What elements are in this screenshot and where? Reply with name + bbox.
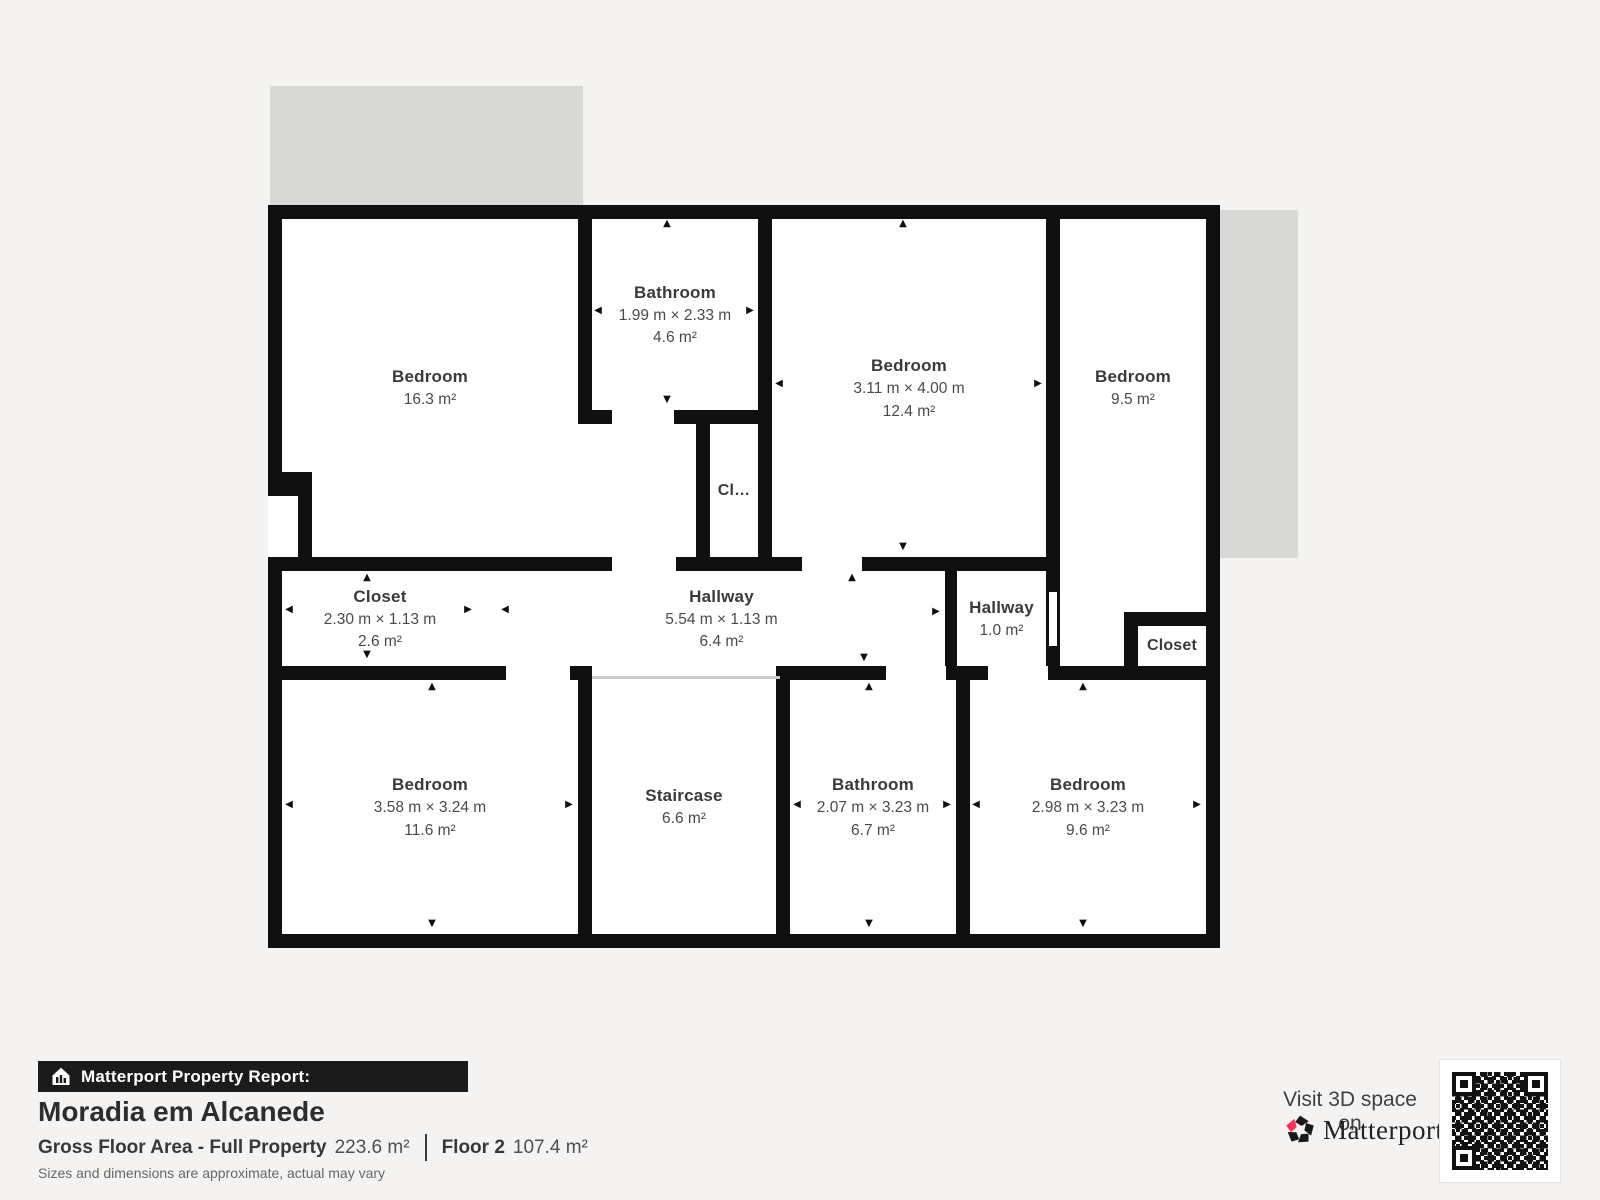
door-bedroommid — [802, 557, 862, 571]
matterport-logo: Matterport’ — [1284, 1114, 1448, 1146]
room-dimensions: 3.58 m × 3.24 m — [374, 798, 486, 817]
arrow-left-icon: ◀ — [793, 800, 801, 810]
floor-label: Floor 2 — [442, 1137, 505, 1159]
door-bathroomb — [886, 666, 946, 680]
room-closet-right: Closet — [1138, 626, 1206, 666]
floor-value: 107.4 m² — [513, 1137, 588, 1159]
arrow-left-icon: ◀ — [972, 800, 980, 810]
report-badge-label: Matterport Property Report: — [81, 1067, 310, 1087]
arrow-left-icon: ◀ — [285, 800, 293, 810]
arrow-right-icon: ▶ — [1034, 379, 1042, 389]
arrow-down-icon: ▼ — [1079, 919, 1087, 929]
room-area: 12.4 m² — [883, 402, 936, 421]
wall-hallway-end — [945, 571, 957, 666]
room-staircase: Staircase 6.6 m² — [592, 680, 776, 934]
room-area: 11.6 m² — [404, 821, 455, 840]
wall-closetmid-left — [696, 424, 710, 571]
wall-outer-left-lower — [268, 557, 282, 948]
room-name: Bedroom — [1050, 774, 1126, 795]
room-name: Bedroom — [1095, 366, 1171, 387]
property-title: Moradia em Alcanede — [38, 1096, 325, 1128]
arrow-up-icon: ▲ — [899, 219, 907, 229]
room-area: 6.6 m² — [662, 809, 706, 828]
room-hallway-main: Hallway 5.54 m × 1.13 m 6.4 m² — [498, 571, 945, 666]
qr-code — [1452, 1072, 1548, 1170]
room-bedroom-bottom-left: Bedroom 3.58 m × 3.24 m 11.6 m² — [282, 680, 578, 934]
room-bathroom-bottom: Bathroom 2.07 m × 3.23 m 6.7 m² — [790, 680, 956, 934]
room-bedroom-right: Bedroom 9.5 m² — [1060, 219, 1206, 557]
metrics-divider — [425, 1134, 427, 1161]
wall-bathroom-right — [758, 205, 772, 571]
gross-area-value: 223.6 m² — [335, 1137, 410, 1159]
room-bedroom-top-left: Bedroom 16.3 m² — [282, 219, 578, 557]
room-area: 1.0 m² — [980, 621, 1024, 640]
arrow-right-icon: ▶ — [932, 607, 940, 617]
room-dimensions: 1.99 m × 2.33 m — [619, 306, 731, 325]
room-bathroom-top: Bathroom 1.99 m × 2.33 m 4.6 m² — [592, 219, 758, 410]
terrace-top-left — [270, 86, 583, 205]
arrow-down-icon: ▼ — [663, 395, 671, 405]
room-name: Bathroom — [634, 282, 716, 303]
room-name: Bedroom — [392, 366, 468, 387]
room-name: Bedroom — [871, 355, 947, 376]
arrow-up-icon: ▲ — [363, 573, 371, 583]
room-closet-middle: Cl… — [710, 424, 758, 557]
disclaimer-text: Sizes and dimensions are approximate, ac… — [38, 1165, 385, 1181]
staircase-open-edge — [592, 676, 780, 679]
wall-staircase-right — [776, 666, 790, 948]
wall-outer-right — [1206, 205, 1220, 948]
arrow-down-icon: ▼ — [865, 919, 873, 929]
arrow-down-icon: ▼ — [860, 653, 868, 663]
wall-bathroom-bottom — [578, 410, 772, 424]
qr-finder-icon — [1524, 1072, 1548, 1096]
wall-bedroomtl-bathroom — [578, 205, 592, 424]
qr-finder-icon — [1452, 1146, 1476, 1170]
room-name: Bathroom — [832, 774, 914, 795]
room-closet-left: Closet 2.30 m × 1.13 m 2.6 m² — [282, 571, 478, 666]
room-hallway-small: Hallway 1.0 m² — [957, 571, 1046, 666]
matterport-wordmark: Matterport’ — [1323, 1115, 1448, 1146]
arrow-left-icon: ◀ — [501, 605, 509, 615]
qr-finder-icon — [1452, 1072, 1476, 1096]
wall-bedroombl-right — [578, 666, 592, 948]
arrow-left-icon: ◀ — [775, 379, 783, 389]
arrow-right-icon: ▶ — [943, 800, 951, 810]
room-dimensions: 2.30 m × 1.13 m — [324, 610, 436, 629]
arrow-up-icon: ▲ — [848, 573, 856, 583]
door-bathroom-top — [612, 410, 674, 424]
arrow-down-icon: ▼ — [363, 650, 371, 660]
room-name: Closet — [1147, 636, 1197, 656]
room-dimensions: 2.98 m × 3.23 m — [1032, 798, 1144, 817]
arrow-down-icon: ▼ — [428, 919, 436, 929]
room-dimensions: 2.07 m × 3.23 m — [817, 798, 929, 817]
room-area: 9.5 m² — [1111, 390, 1155, 409]
room-area: 6.4 m² — [700, 632, 744, 651]
door-hallwaysmall — [1049, 592, 1057, 646]
room-bedroom-middle: Bedroom 3.11 m × 4.00 m 12.4 m² — [772, 219, 1046, 557]
wall-outer-bottom — [268, 934, 1220, 948]
door-bedroombr — [988, 666, 1048, 680]
arrow-up-icon: ▲ — [663, 219, 671, 229]
room-name: Bedroom — [392, 774, 468, 795]
room-area: 6.7 m² — [851, 821, 895, 840]
gross-area-label: Gross Floor Area - Full Property — [38, 1137, 327, 1159]
arrow-right-icon: ▶ — [1193, 800, 1201, 810]
arrow-right-icon: ▶ — [464, 605, 472, 615]
arrow-left-icon: ◀ — [285, 605, 293, 615]
room-dimensions: 3.11 m × 4.00 m — [853, 379, 964, 398]
area-metrics: Gross Floor Area - Full Property 223.6 m… — [38, 1134, 588, 1161]
report-badge-bar: Matterport Property Report: — [38, 1061, 468, 1092]
house-bars-icon — [51, 1067, 71, 1086]
wall-outer-top — [268, 205, 1220, 219]
terrace-right — [1220, 210, 1298, 558]
room-area: 4.6 m² — [653, 328, 697, 347]
room-area: 16.3 m² — [404, 390, 457, 409]
arrow-down-icon: ▼ — [899, 542, 907, 552]
arrow-right-icon: ▶ — [565, 800, 573, 810]
arrow-up-icon: ▲ — [1079, 682, 1087, 692]
room-name: Staircase — [645, 785, 722, 806]
room-name: Hallway — [689, 586, 754, 607]
matterport-pinwheel-icon — [1284, 1114, 1316, 1146]
room-bedroom-bottom-right: Bedroom 2.98 m × 3.23 m 9.6 m² — [970, 680, 1206, 934]
room-dimensions: 5.54 m × 1.13 m — [665, 610, 777, 629]
wall-bathroomb-right — [956, 666, 970, 948]
arrow-right-icon: ▶ — [746, 306, 754, 316]
room-name: Closet — [353, 586, 406, 607]
room-name: Cl… — [718, 481, 751, 501]
wall-outer-left-upper — [268, 205, 282, 472]
room-name: Hallway — [969, 597, 1034, 618]
arrow-left-icon: ◀ — [594, 306, 602, 316]
qr-card — [1439, 1059, 1561, 1183]
wall-closetright-top — [1124, 612, 1220, 626]
door-bedroombl — [506, 666, 570, 680]
room-area: 9.6 m² — [1066, 821, 1110, 840]
arrow-up-icon: ▲ — [865, 682, 873, 692]
door-vestibule-hallway — [612, 557, 676, 571]
arrow-up-icon: ▲ — [428, 682, 436, 692]
